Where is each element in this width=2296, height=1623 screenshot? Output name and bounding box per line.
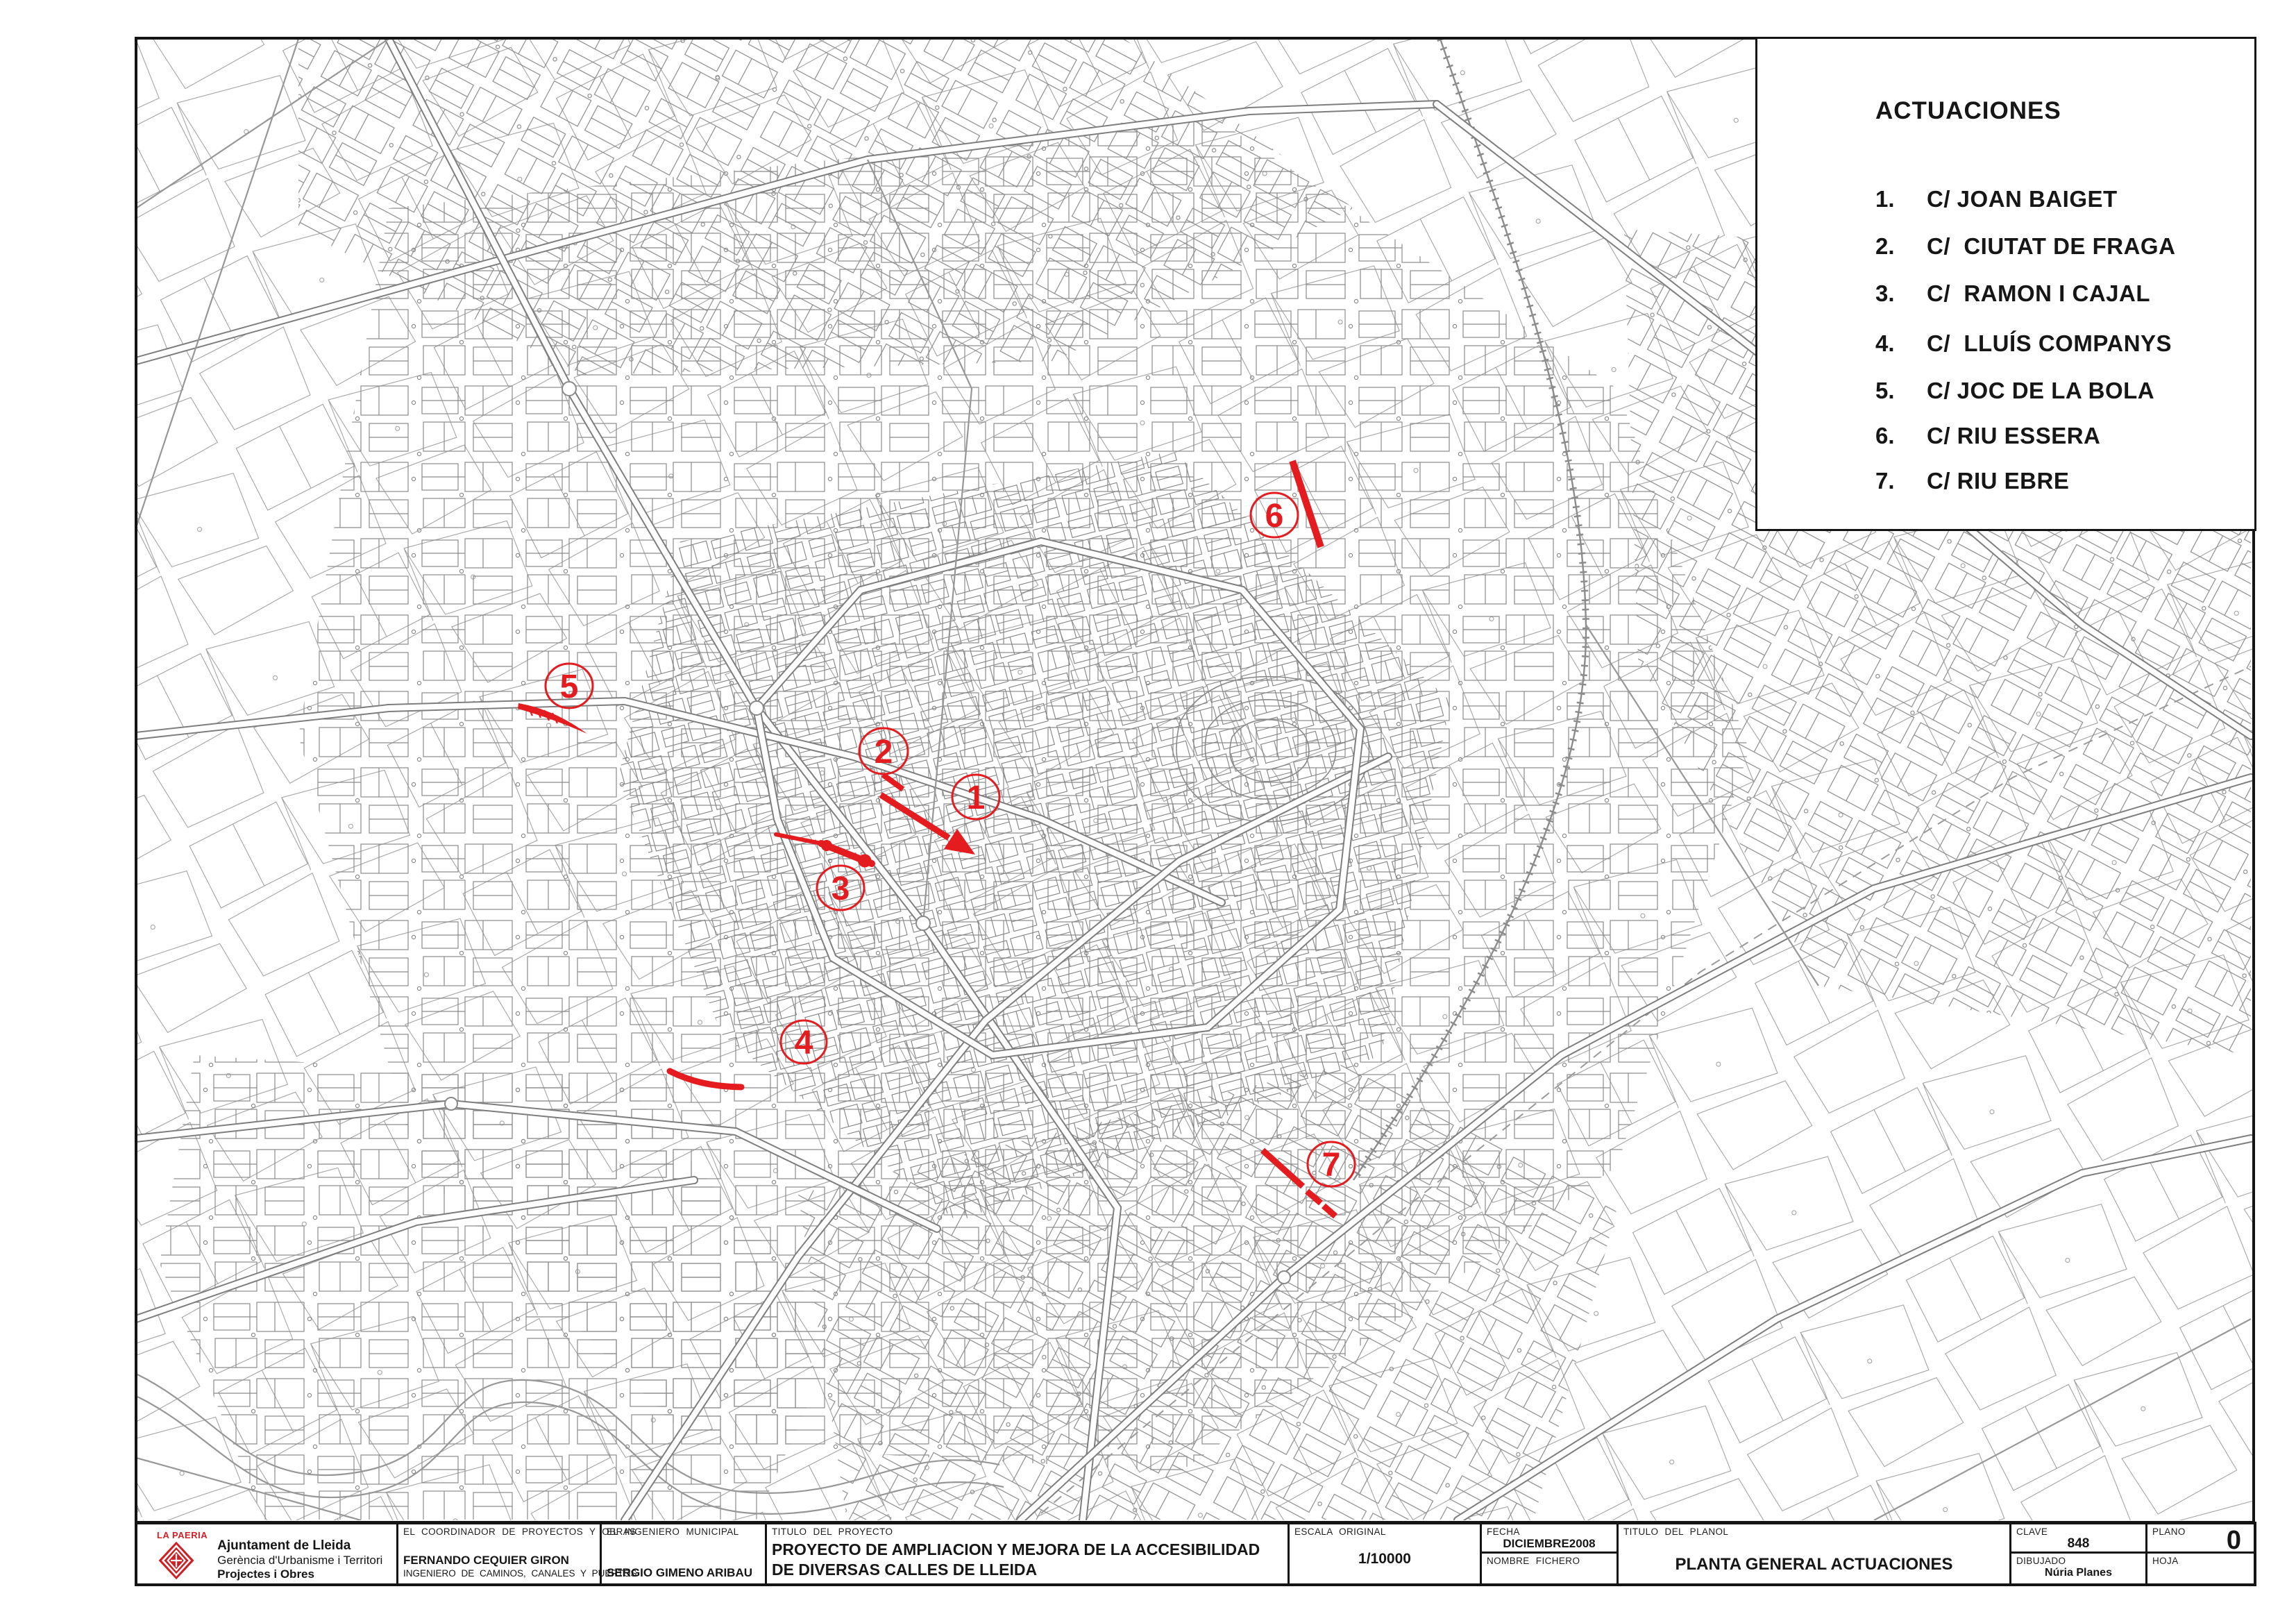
la-paeria-label: LA PAERIA — [157, 1530, 208, 1540]
date-value: DICIEMBRE2008 — [1482, 1537, 1617, 1551]
legend-item-name: C/ JOC DE LA BOLA — [1927, 378, 2154, 404]
plan-title-label: TITULO DEL PLANOL — [1623, 1527, 1728, 1537]
legend-item-number: 2. — [1875, 233, 1927, 260]
legend-item-6: 6. C/ RIU ESSERA — [1875, 423, 2100, 449]
legend-item-5: 5. C/ JOC DE LA BOLA — [1875, 378, 2154, 404]
legend-item-4: 4. C/ LLUÍS COMPANYS — [1875, 330, 2172, 357]
legend-item-number: 5. — [1875, 378, 1927, 404]
titleblock-date-file-cell: FECHA DICIEMBRE2008 NOMBRE FICHERO — [1482, 1524, 1619, 1583]
marker-4-number: 4 — [795, 1025, 813, 1061]
titleblock-coordinator-cell: EL COORDINADOR DE PROYECTOS Y OBRAS FERN… — [398, 1524, 602, 1583]
engineer-name: SERGIO GIMENO ARIBAU — [607, 1566, 752, 1580]
legend-title: ACTUACIONES — [1875, 97, 2061, 125]
marker-2-number: 2 — [875, 734, 893, 771]
plano-cell: PLANO 0 — [2147, 1524, 2254, 1554]
legend-item-number: 7. — [1875, 468, 1927, 494]
file-cell: NOMBRE FICHERO — [1482, 1554, 1617, 1583]
hoja-label: HOJA — [2152, 1556, 2179, 1566]
title-block: LA PAERIA Ajuntament de Lleida Gerència … — [135, 1522, 2256, 1586]
plan-title-value: PLANTA GENERAL ACTUACIONES — [1619, 1555, 2009, 1574]
legend-item-1: 1. C/ JOAN BAIGET — [1875, 186, 2118, 212]
legend-item-number: 6. — [1875, 423, 1927, 449]
key-cell: CLAVE 848 — [2011, 1524, 2145, 1554]
key-value: 848 — [2011, 1536, 2145, 1551]
legend-item-name: C/ RAMON I CAJAL — [1927, 280, 2150, 307]
scale-label: ESCALA ORIGINAL — [1294, 1527, 1386, 1537]
coordinator-name: FERNANDO CEQUIER GIRON — [403, 1554, 569, 1567]
marker-7-number: 7 — [1322, 1147, 1341, 1184]
key-label: CLAVE — [2016, 1527, 2048, 1537]
drawn-cell: DIBUJADO Núria Planes — [2011, 1554, 2145, 1583]
legend-box: ACTUACIONES 1. C/ JOAN BAIGET 2. C/ CIUT… — [1755, 37, 2256, 531]
org-unit: Projectes i Obres — [217, 1567, 382, 1581]
actuation-3-node-b — [859, 855, 872, 868]
legend-item-name: C/ RIU ESSERA — [1927, 423, 2100, 449]
legend-item-7: 7. C/ RIU EBRE — [1875, 468, 2069, 494]
engineer-label: EL INGENIERO MUNICIPAL — [607, 1527, 739, 1537]
titleblock-engineer-cell: EL INGENIERO MUNICIPAL SERGIO GIMENO ARI… — [602, 1524, 767, 1583]
marker-1-number: 1 — [967, 780, 986, 816]
legend-item-name: C/ LLUÍS COMPANYS — [1927, 330, 2172, 357]
marker-3-number: 3 — [832, 871, 850, 907]
project-label: TITULO DEL PROYECTO — [772, 1527, 893, 1537]
titleblock-scale-cell: ESCALA ORIGINAL 1/10000 — [1290, 1524, 1482, 1583]
legend-item-name: C/ CIUTAT DE FRAGA — [1927, 233, 2175, 260]
drawn-label: DIBUJADO — [2016, 1556, 2066, 1566]
legend-item-name: C/ JOAN BAIGET — [1927, 186, 2118, 212]
la-paeria-logo-icon — [157, 1540, 196, 1581]
plano-value: 0 — [2227, 1527, 2241, 1554]
date-cell: FECHA DICIEMBRE2008 — [1482, 1524, 1617, 1554]
titleblock-org-cell: LA PAERIA Ajuntament de Lleida Gerència … — [137, 1524, 398, 1583]
org-department: Gerència d'Urbanisme i Territori — [217, 1554, 382, 1567]
legend-item-number: 1. — [1875, 186, 1927, 212]
plano-label: PLANO — [2152, 1527, 2186, 1537]
legend-item-2: 2. C/ CIUTAT DE FRAGA — [1875, 233, 2175, 260]
marker-6-number: 6 — [1265, 498, 1284, 535]
org-name: Ajuntament de Lleida — [217, 1538, 382, 1554]
legend-item-3: 3. C/ RAMON I CAJAL — [1875, 280, 2150, 307]
legend-item-name: C/ RIU EBRE — [1927, 468, 2069, 494]
file-label: NOMBRE FICHERO — [1487, 1556, 1580, 1566]
legend-item-number: 3. — [1875, 280, 1927, 307]
titleblock-plan-title-cell: TITULO DEL PLANOL PLANTA GENERAL ACTUACI… — [1619, 1524, 2011, 1583]
titleblock-key-drawn-cell: CLAVE 848 DIBUJADO Núria Planes — [2011, 1524, 2147, 1583]
project-title: PROYECTO DE AMPLIACION Y MEJORA DE LA AC… — [772, 1540, 1285, 1580]
legend-item-number: 4. — [1875, 330, 1927, 357]
drawn-value: Núria Planes — [2011, 1567, 2145, 1579]
titleblock-plano-hoja-cell: PLANO 0 HOJA — [2147, 1524, 2254, 1583]
date-label: FECHA — [1487, 1527, 1520, 1537]
scale-value: 1/10000 — [1290, 1551, 1480, 1567]
titleblock-project-cell: TITULO DEL PROYECTO PROYECTO DE AMPLIACI… — [767, 1524, 1290, 1583]
marker-5-number: 5 — [560, 668, 579, 705]
actuation-3-node-a — [821, 840, 832, 851]
hoja-cell: HOJA — [2147, 1554, 2254, 1583]
